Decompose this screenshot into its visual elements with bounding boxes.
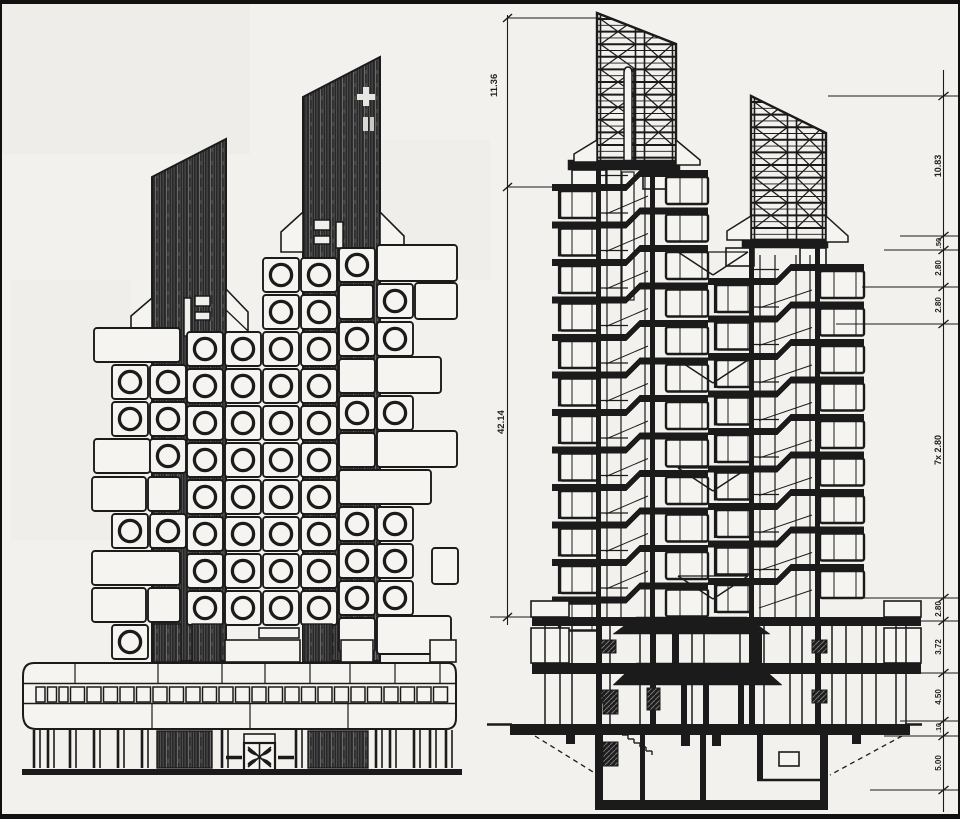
svg-text:.50: .50 (934, 238, 943, 248)
svg-text:2.80: 2.80 (934, 297, 943, 313)
svg-text:2.80: 2.80 (934, 601, 943, 617)
svg-text:3.72: 3.72 (934, 639, 943, 655)
svg-text:7x 2.80: 7x 2.80 (933, 435, 943, 465)
svg-text:42.14: 42.14 (496, 410, 507, 434)
svg-text:5.00: 5.00 (934, 755, 943, 771)
svg-text:2.80: 2.80 (934, 260, 943, 276)
svg-text:11.36: 11.36 (489, 74, 500, 97)
svg-text:4.50: 4.50 (934, 689, 943, 705)
svg-text:10.83: 10.83 (933, 155, 943, 178)
svg-text:.10: .10 (936, 723, 943, 733)
